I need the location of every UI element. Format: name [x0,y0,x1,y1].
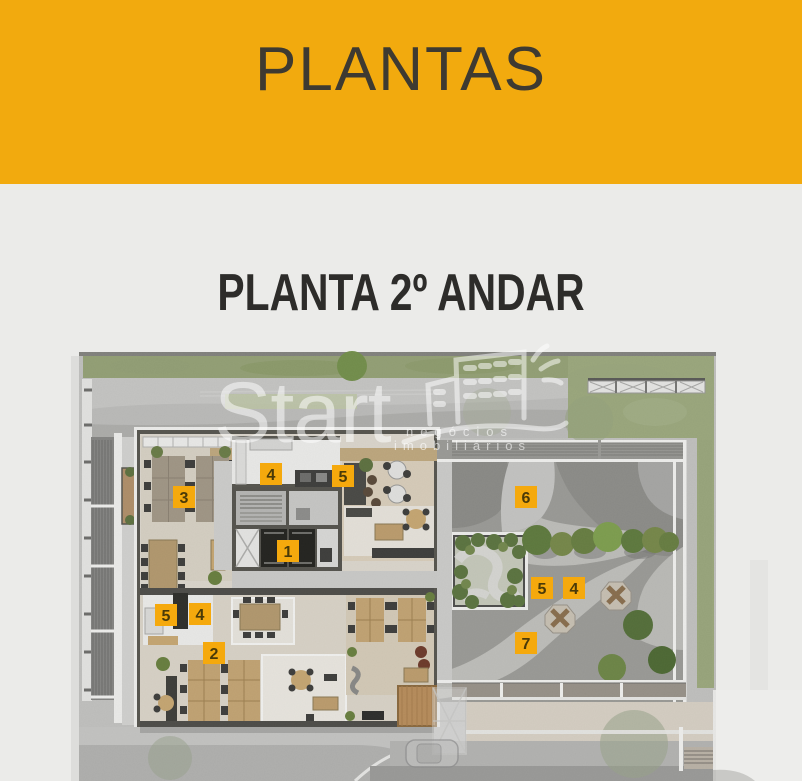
svg-text:3: 3 [180,490,189,507]
svg-text:5: 5 [339,469,348,486]
svg-text:4: 4 [196,607,205,624]
svg-text:4: 4 [570,581,579,598]
svg-text:2: 2 [210,646,219,663]
svg-text:6: 6 [522,490,531,507]
svg-text:4: 4 [267,467,276,484]
svg-text:1: 1 [284,544,293,561]
svg-text:7: 7 [522,636,531,653]
svg-text:5: 5 [162,608,171,625]
svg-text:5: 5 [538,581,547,598]
svg-text:Start: Start [214,365,392,461]
